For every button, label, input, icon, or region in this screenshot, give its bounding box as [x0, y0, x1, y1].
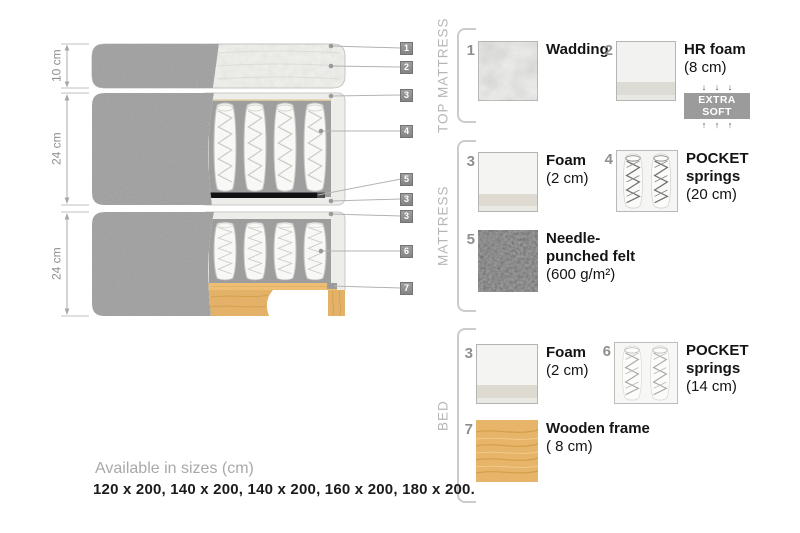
pocket-springs-swatch [614, 342, 678, 404]
extra-soft-block: ↓ ↓ ↓ EXTRA SOFT ↑ ↑ ↑ [684, 82, 750, 131]
dimension-arrows [65, 45, 70, 316]
callout-tag-3: 3 [400, 89, 413, 102]
bed-cross-section-diagram [55, 35, 430, 320]
legend-name: POCKET springs [686, 342, 780, 378]
legend-item-needle-punched-felt: 5 Needle-punched felt (600 g/m²) [460, 230, 640, 292]
dimension-label-24cm-mattress: 24 cm [49, 93, 64, 205]
callout-tag-6: 6 [400, 245, 413, 258]
legend-number: 3 [460, 152, 475, 170]
foam-swatch [476, 344, 538, 404]
wooden-frame [208, 283, 345, 316]
top-mattress-section [92, 44, 345, 88]
legend-name: Wooden frame [546, 420, 706, 438]
legend-name: HR foam [684, 41, 778, 59]
callout-tag-2: 2 [400, 61, 413, 74]
legend-item-pocket-springs-20: 4 POCKET springs (20 cm) [598, 150, 780, 212]
legend-number: 2 [598, 41, 613, 59]
legend-item-pocket-springs-14: 6 POCKET springs (14 cm) [596, 342, 780, 404]
dimension-lines [61, 44, 89, 316]
wood-swatch [476, 420, 538, 482]
legend-item-hr-foam: 2 HR foam (8 cm) ↓ ↓ ↓ EXTRA SOFT ↑ ↑ ↑ [598, 41, 778, 131]
foam-swatch [616, 41, 676, 101]
available-sizes-list: 120 x 200, 140 x 200, 140 x 200, 160 x 2… [93, 481, 475, 498]
pocket-springs-swatch [616, 150, 678, 212]
callout-tag-5: 5 [400, 173, 413, 186]
legend-number: 6 [596, 342, 611, 360]
callout-tag-1: 1 [400, 42, 413, 55]
legend-detail: (14 cm) [686, 378, 780, 396]
soft-arrows-up-icon: ↑ ↑ ↑ [684, 120, 750, 131]
available-sizes-title: Available in sizes (cm) [95, 460, 254, 478]
legend-detail: (20 cm) [686, 186, 780, 204]
legend-detail: (8 cm) [684, 59, 778, 77]
dimension-label-24cm-bed: 24 cm [49, 212, 64, 316]
dimension-label-10cm: 10 cm [49, 44, 64, 88]
legend-number: 1 [460, 41, 475, 59]
legend-name: Needle-punched felt [546, 230, 640, 266]
wadding-swatch [478, 41, 538, 101]
section-label-top-mattress: TOP MATTRESS [434, 28, 452, 123]
mattress-section [92, 93, 345, 205]
legend-number: 7 [458, 420, 473, 438]
bed-section [92, 212, 345, 316]
foam-swatch [478, 152, 538, 212]
fabric-cover [92, 212, 214, 316]
fabric-cover [92, 93, 214, 205]
callout-tag-3c: 3 [400, 210, 413, 223]
callout-tag-7: 7 [400, 282, 413, 295]
legend-item-wooden-frame: 7 Wooden frame ( 8 cm) [458, 420, 706, 482]
callout-tag-4: 4 [400, 125, 413, 138]
legend-name: POCKET springs [686, 150, 780, 186]
legend-number: 3 [458, 344, 473, 362]
fabric-cover [92, 44, 219, 88]
section-label-bed: BED [434, 328, 452, 503]
legend-number: 5 [460, 230, 475, 248]
legend-detail: (600 g/m²) [546, 266, 640, 284]
section-label-mattress: MATTRESS [434, 140, 452, 312]
callout-tag-3b: 3 [400, 193, 413, 206]
mattress-construction-infographic: 10 cm 24 cm 24 cm 1 2 3 4 5 3 3 6 7 TOP … [0, 0, 800, 533]
legend-number: 4 [598, 150, 613, 168]
legend-detail: ( 8 cm) [546, 438, 706, 456]
extra-soft-badge: EXTRA SOFT [684, 93, 750, 119]
felt-swatch [478, 230, 538, 292]
soft-arrows-down-icon: ↓ ↓ ↓ [684, 82, 750, 93]
felt-bar [209, 193, 325, 199]
